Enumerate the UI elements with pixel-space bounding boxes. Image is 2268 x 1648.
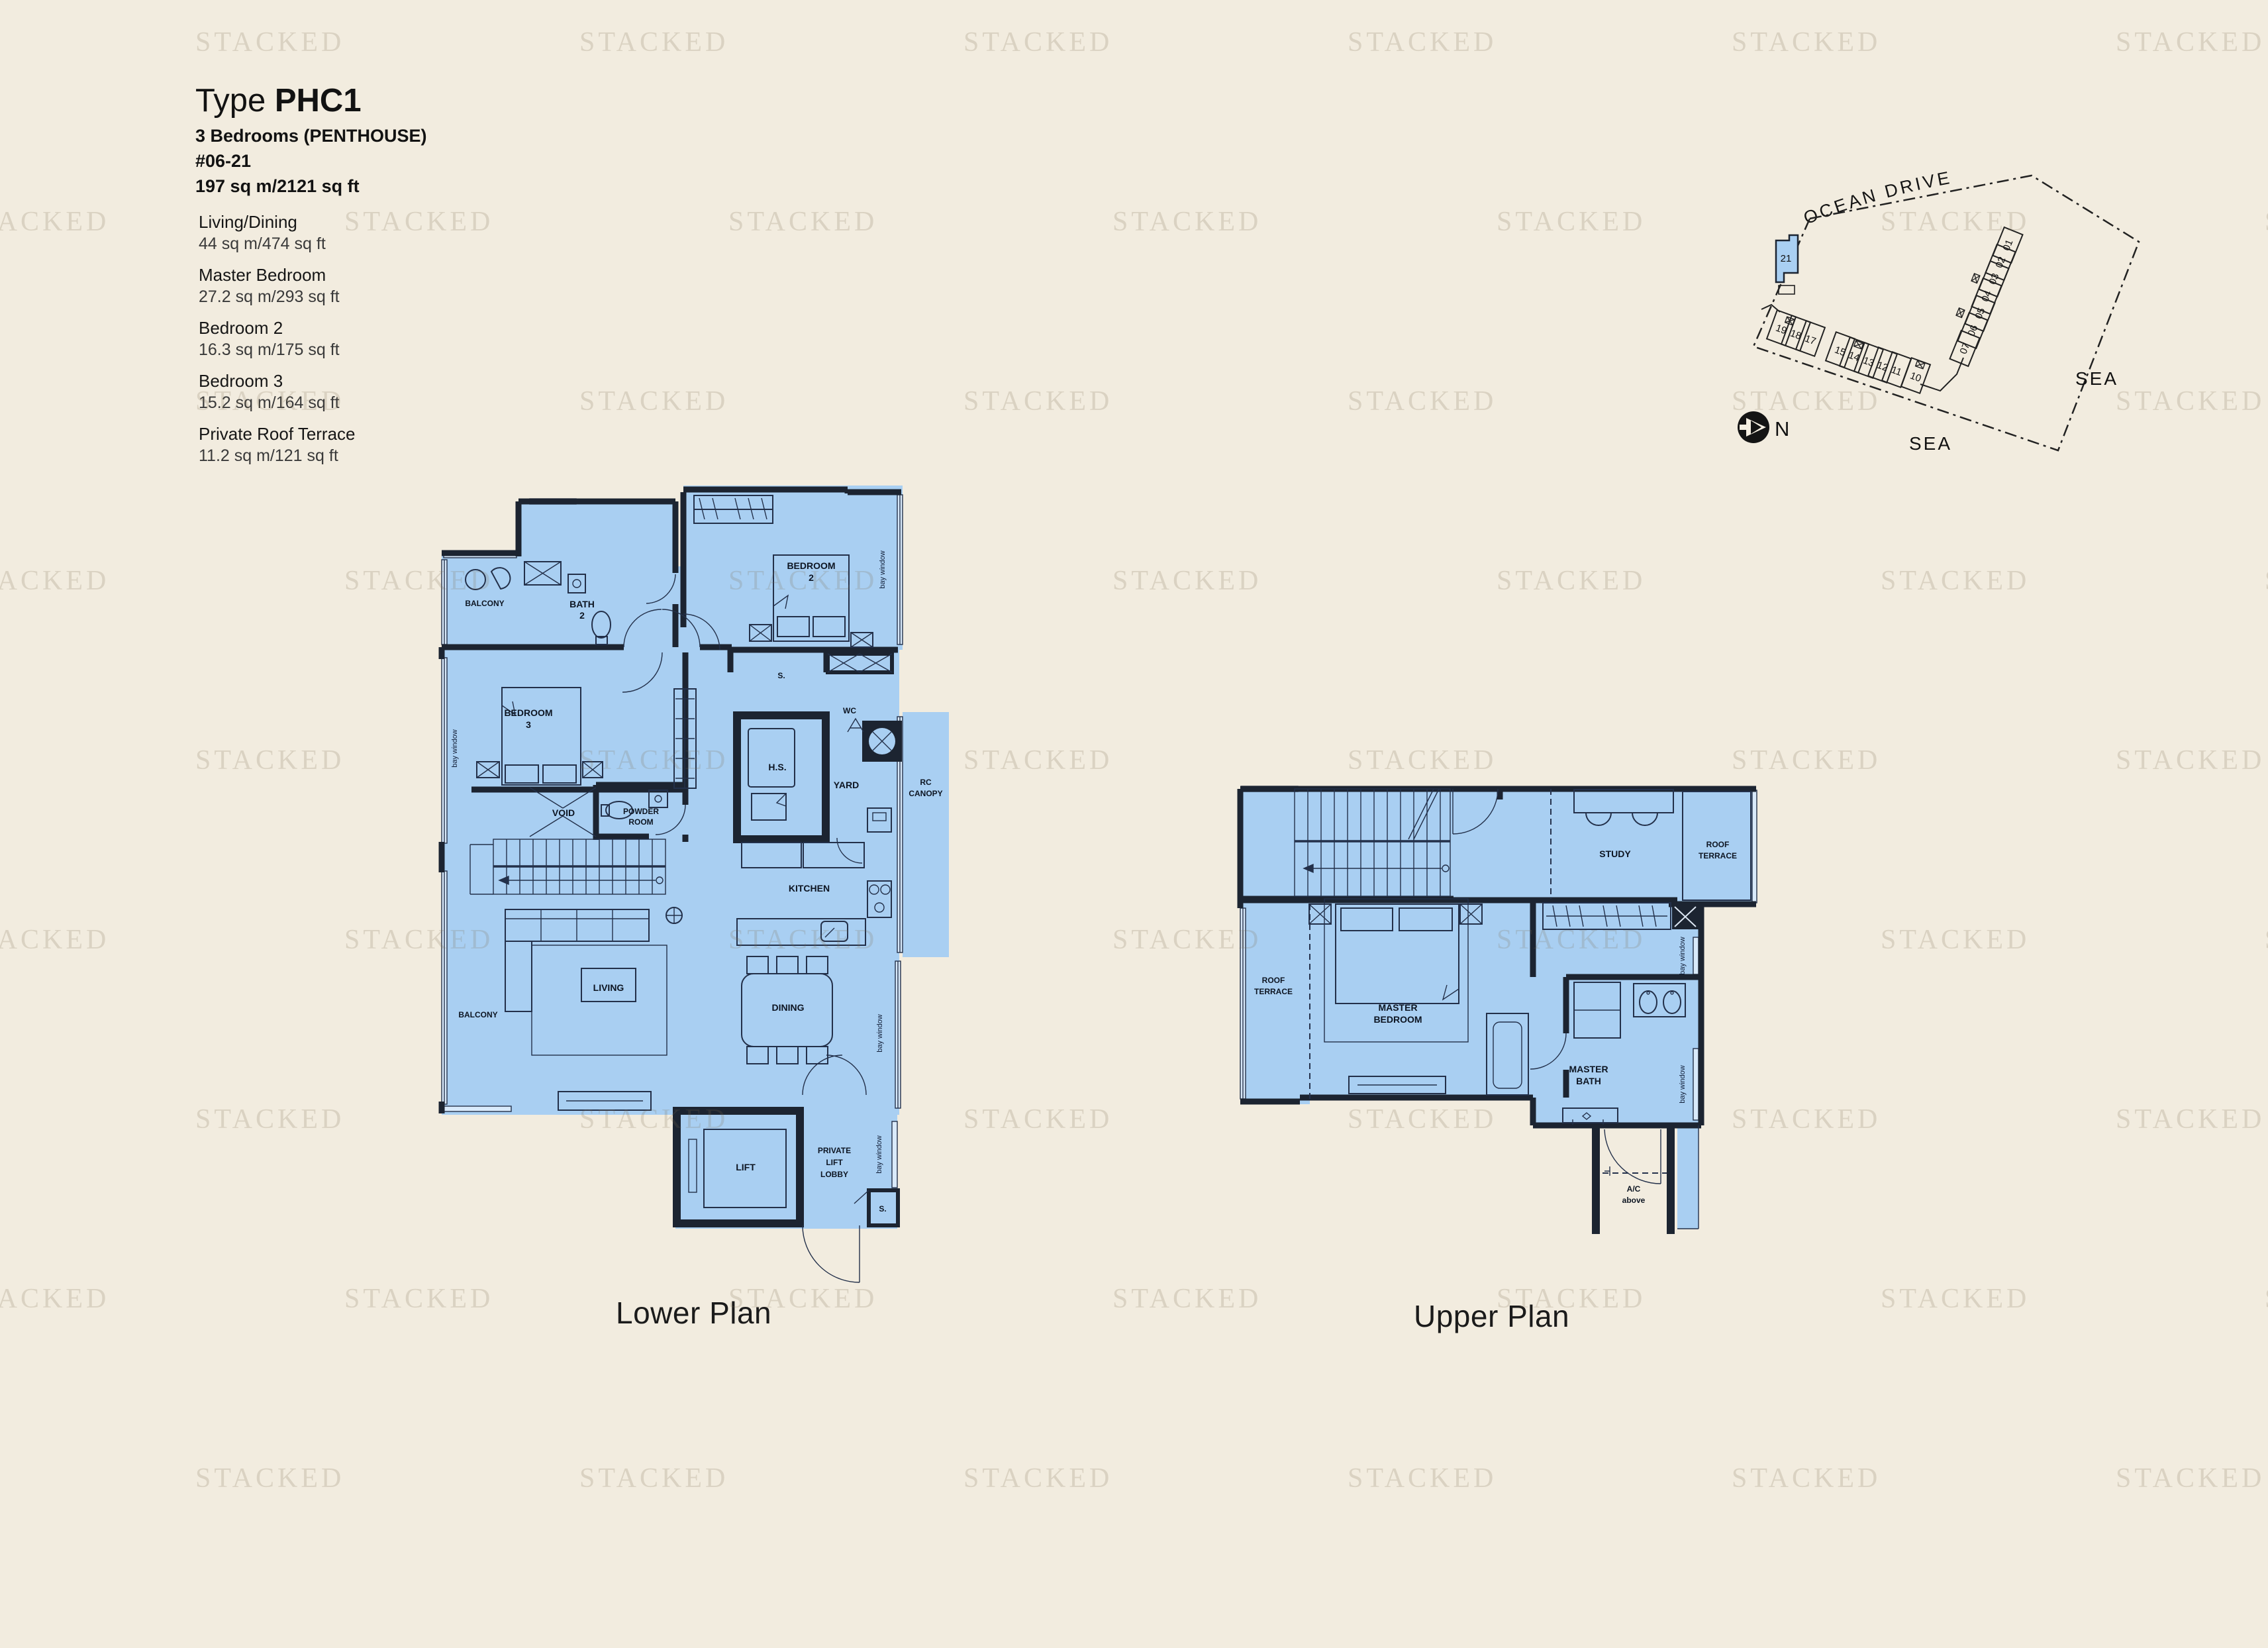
watermark-text: STACKED xyxy=(195,745,344,776)
watermark-text: STACKED xyxy=(2116,26,2265,58)
label-wc: WC xyxy=(843,706,856,715)
watermark-text: STACKED xyxy=(963,386,1112,417)
watermark-text: STACKED xyxy=(2116,1104,2265,1135)
watermark-text: STACKED xyxy=(2265,1283,2268,1315)
watermark-text: STACKED xyxy=(963,26,1112,58)
sea-label-south: SEA xyxy=(1909,433,1952,454)
watermark-text: STACKED xyxy=(963,745,1112,776)
label-kitchen: KITCHEN xyxy=(789,883,830,894)
north-arrow-icon xyxy=(1738,411,1769,443)
floorplan-page: STACKEDSTACKEDSTACKEDSTACKEDSTACKEDSTACK… xyxy=(0,0,2268,1648)
watermark-text: STACKED xyxy=(1348,386,1497,417)
watermark-text: STACKED xyxy=(1732,1463,1881,1494)
svg-text:01: 01 xyxy=(2000,238,2015,252)
room-name: Bedroom 3 xyxy=(199,371,356,391)
watermark-text: STACKED xyxy=(1497,206,1646,238)
watermark-text: STACKED xyxy=(963,1463,1112,1494)
label-master-bedroom: MASTER xyxy=(1378,1002,1417,1013)
watermark-text: STACKED xyxy=(1881,565,2030,597)
label-private-lift-lobby: PRIVATE xyxy=(818,1146,851,1155)
label-lift: LIFT xyxy=(736,1162,756,1172)
label-bay-window: bay window xyxy=(875,1135,883,1174)
watermark-text: STACKED xyxy=(195,1463,344,1494)
svg-text:CANOPY: CANOPY xyxy=(909,789,942,798)
label-bay-window: bay window xyxy=(876,1014,884,1053)
page-title: Type PHC1 xyxy=(195,82,427,119)
label-ac-above: A/C xyxy=(1627,1184,1641,1194)
lift-core-icons xyxy=(1785,274,1980,369)
label-bay-window: bay window xyxy=(1679,937,1687,975)
watermark-text: STACKED xyxy=(963,1104,1112,1135)
label-bay-window: bay window xyxy=(451,729,459,768)
svg-text:TERRACE: TERRACE xyxy=(1254,987,1293,996)
watermark-text: STACKED xyxy=(1732,26,1881,58)
svg-text:2: 2 xyxy=(809,572,814,583)
watermark-text: STACKED xyxy=(1881,924,2030,956)
lower-plan-caption: Lower Plan xyxy=(616,1295,771,1331)
svg-text:2: 2 xyxy=(579,610,585,621)
label-bedroom2: BEDROOM xyxy=(787,560,835,571)
upper-shaft xyxy=(1672,904,1699,929)
lower-floor xyxy=(442,486,949,1229)
label-bath2: BATH xyxy=(569,599,595,609)
svg-text:LOBBY: LOBBY xyxy=(820,1170,848,1179)
svg-text:BATH: BATH xyxy=(1576,1076,1601,1086)
watermark-text: STACKED xyxy=(0,1283,109,1315)
watermark-text: STACKED xyxy=(1112,206,1261,238)
room-area: 44 sq m/474 sq ft xyxy=(199,234,356,254)
svg-text:LIFT: LIFT xyxy=(826,1158,843,1167)
watermark-text: STACKED xyxy=(344,206,493,238)
label-balcony-top: BALCONY xyxy=(465,599,504,608)
label-dining: DINING xyxy=(772,1002,805,1013)
type-code: PHC1 xyxy=(275,83,362,119)
watermark-text: STACKED xyxy=(195,1104,344,1135)
svg-text:14: 14 xyxy=(1847,350,1861,364)
sea-label-east: SEA xyxy=(2075,368,2118,389)
watermark-text: STACKED xyxy=(2265,206,2268,238)
lower-plan: BALCONY BATH 2 BEDROOM 2 bay window S. W… xyxy=(430,474,954,1295)
room-area: 27.2 sq m/293 sq ft xyxy=(199,287,356,307)
label-master-bath: MASTER xyxy=(1569,1064,1608,1074)
road-label: OCEAN DRIVE xyxy=(1801,168,1954,229)
label-yard: YARD xyxy=(834,780,859,790)
svg-text:12: 12 xyxy=(1875,360,1889,374)
svg-text:BEDROOM: BEDROOM xyxy=(1373,1014,1422,1025)
list-item: Private Roof Terrace 11.2 sq m/121 sq ft xyxy=(199,424,356,466)
watermark-text: STACKED xyxy=(0,206,109,238)
label-rc-canopy: RC xyxy=(920,778,932,787)
watermark-text: STACKED xyxy=(1881,1283,2030,1315)
svg-text:TERRACE: TERRACE xyxy=(1699,851,1737,860)
watermark-text: STACKED xyxy=(1112,565,1261,597)
watermark-text: STACKED xyxy=(2116,745,2265,776)
watermark-text: STACKED xyxy=(1348,1463,1497,1494)
list-item: Master Bedroom 27.2 sq m/293 sq ft xyxy=(199,265,356,307)
list-item: Living/Dining 44 sq m/474 sq ft xyxy=(199,212,356,254)
unit-number: #06-21 xyxy=(195,151,427,172)
label-roof-terrace-tr: ROOF xyxy=(1706,840,1730,849)
svg-text:3: 3 xyxy=(526,719,531,730)
svg-text:19: 19 xyxy=(1774,323,1788,337)
watermark-text: STACKED xyxy=(2265,565,2268,597)
watermark-text: STACKED xyxy=(579,1463,728,1494)
watermark-text: STACKED xyxy=(1348,745,1497,776)
unit-21-stub xyxy=(1779,285,1795,294)
watermark-text: STACKED xyxy=(0,565,109,597)
label-living: LIVING xyxy=(593,982,624,993)
watermark-text: STACKED xyxy=(1112,1283,1261,1315)
svg-text:07: 07 xyxy=(1957,341,1972,356)
svg-text:06: 06 xyxy=(1965,323,1980,338)
watermark-text: STACKED xyxy=(579,26,728,58)
label-roof-terrace-left: ROOF xyxy=(1262,976,1285,985)
north-label: N xyxy=(1775,417,1789,440)
watermark-text: STACKED xyxy=(1732,745,1881,776)
svg-text:above: above xyxy=(1622,1196,1646,1205)
list-item: Bedroom 2 16.3 sq m/175 sq ft xyxy=(199,318,356,360)
room-area: 15.2 sq m/164 sq ft xyxy=(199,393,356,413)
label-bay-window: bay window xyxy=(879,550,887,589)
upper-plan-caption: Upper Plan xyxy=(1414,1298,1569,1334)
svg-text:11: 11 xyxy=(1890,364,1903,378)
label-powder-room: POWDER xyxy=(623,807,659,816)
room-area: 11.2 sq m/121 sq ft xyxy=(199,446,356,466)
label-store-2: S. xyxy=(879,1204,886,1213)
room-name: Master Bedroom xyxy=(199,265,356,285)
room-area: 16.3 sq m/175 sq ft xyxy=(199,340,356,360)
label-bay-window: bay window xyxy=(1679,1065,1687,1104)
svg-text:ROOM: ROOM xyxy=(628,817,653,827)
room-name: Living/Dining xyxy=(199,212,356,232)
watermark-text: STACKED xyxy=(0,924,109,956)
watermark-text: STACKED xyxy=(2116,1463,2265,1494)
watermark-text: STACKED xyxy=(728,206,877,238)
list-item: Bedroom 3 15.2 sq m/164 sq ft xyxy=(199,371,356,413)
unit-21-number: 21 xyxy=(1781,253,1792,264)
watermark-text: STACKED xyxy=(195,26,344,58)
fan-shaft xyxy=(862,721,902,762)
label-store: S. xyxy=(777,671,785,680)
label-hs: H.S. xyxy=(768,762,786,772)
site-plan: OCEAN DRIVE xyxy=(1722,156,2159,474)
title-block: Type PHC1 3 Bedrooms (PENTHOUSE) #06-21 … xyxy=(195,82,427,197)
svg-text:15: 15 xyxy=(1833,344,1847,359)
watermark-text: STACKED xyxy=(1348,26,1497,58)
room-name: Bedroom 2 xyxy=(199,318,356,338)
room-name: Private Roof Terrace xyxy=(199,424,356,444)
upper-floor xyxy=(1240,786,1756,1229)
bedrooms-line: 3 Bedrooms (PENTHOUSE) xyxy=(195,126,427,146)
watermark-text: STACKED xyxy=(1497,565,1646,597)
svg-text:10: 10 xyxy=(1908,370,1922,385)
watermark-text: STACKED xyxy=(579,386,728,417)
label-balcony-left: BALCONY xyxy=(458,1010,497,1019)
room-area-list: Living/Dining 44 sq m/474 sq ft Master B… xyxy=(199,212,356,477)
upper-plan: ROOF TERRACE STUDY ROOF TERRACE MASTER B… xyxy=(1235,778,1765,1242)
label-bedroom3: BEDROOM xyxy=(504,707,552,718)
total-area: 197 sq m/2121 sq ft xyxy=(195,176,427,197)
label-void: VOID xyxy=(552,807,575,818)
watermark-text: STACKED xyxy=(2265,924,2268,956)
type-label: Type xyxy=(195,83,266,119)
label-study: STUDY xyxy=(1599,849,1631,859)
